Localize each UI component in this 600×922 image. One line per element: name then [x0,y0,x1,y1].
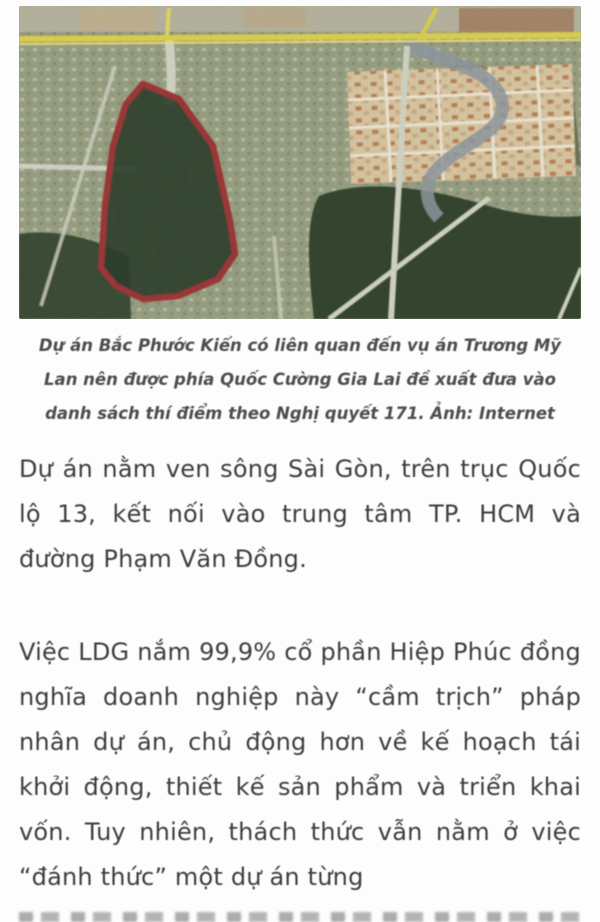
article-paragraph-2: Việc LDG nắm 99,9% cổ phần Hiệp Phúc đồn… [19,630,581,900]
satellite-map-image[interactable] [19,6,581,319]
satellite-map-graphic [19,6,581,319]
article-page: Dự án Bắc Phước Kiển có liên quan đến vụ… [19,0,581,922]
figure-caption: Dự án Bắc Phước Kiển có liên quan đến vụ… [25,329,575,431]
article-body: Dự án nằm ven sông Sài Gòn, trên trục Qu… [19,447,581,922]
article-figure: Dự án Bắc Phước Kiển có liên quan đến vụ… [19,6,581,431]
article-paragraph-1: Dự án nằm ven sông Sài Gòn, trên trục Qu… [19,447,581,582]
map-noise-overlay [19,6,581,319]
clipped-text-line [19,912,581,922]
